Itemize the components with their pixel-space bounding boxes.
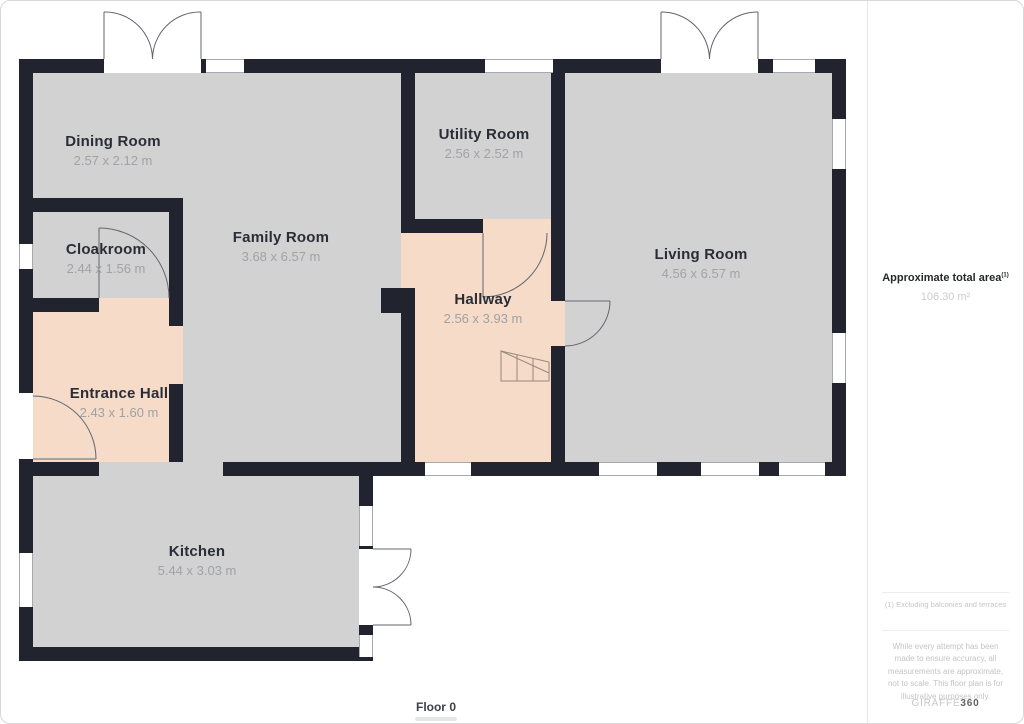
disclaimer-text: While every attempt has been made to ens… [884, 641, 1007, 703]
window-left-cloakroom [19, 244, 33, 269]
wall-entrance-bottom-b [223, 462, 359, 476]
sidebar: Approximate total area(1) 106.30 m² (1) … [868, 1, 1023, 723]
window-bottom-hallway [425, 462, 471, 476]
wall-entrance-right-a [169, 312, 183, 326]
hallway-living-doorway [551, 301, 565, 346]
wall-hallway-stub [381, 288, 415, 313]
window-right-1 [832, 119, 846, 169]
floor-tab-underline [415, 717, 457, 721]
brand-suffix: 360 [960, 698, 979, 709]
wall-hallway-living [551, 346, 565, 476]
living-door-right-arc [710, 12, 759, 59]
door-gap-living-top [661, 59, 758, 73]
brand-name: GIRAFFE [911, 698, 960, 709]
entrance-hall-floor [33, 312, 169, 462]
wall-utility-living [551, 59, 565, 301]
hallway-utility-doorway [483, 219, 551, 233]
window-right-2 [832, 333, 846, 383]
wall-entrance-right-b [169, 384, 183, 462]
wall-cloakroom-bottom [33, 298, 99, 312]
window-bottom-living-3 [779, 462, 825, 476]
giraffe360-logo: GIRAFFE360 [868, 698, 1023, 709]
wall-utility-bottom [401, 219, 483, 233]
window-kitchen-right [359, 506, 373, 546]
floorplan-page: Dining Room2.57 x 2.12 m Utility Room2.5… [0, 0, 1024, 724]
area-footnote: (1) Excluding balconies and terraces [868, 600, 1023, 609]
wall-entrance-bottom-a [19, 462, 99, 476]
door-gap-dining [104, 59, 201, 73]
door-gap-front [19, 393, 33, 459]
window-top-utility [485, 59, 553, 73]
wall-bottom-kitchen [19, 647, 373, 661]
sidebar-divider-top [882, 592, 1009, 593]
window-bottom-living-1 [599, 462, 657, 476]
window-left-kitchen [19, 553, 33, 607]
door-gap-kitchen-rear [359, 549, 373, 625]
total-area-label: Approximate total area(1) [868, 272, 1023, 284]
wall-family-hallway [401, 313, 415, 462]
kitchen-door-top-arc [373, 549, 411, 587]
hallway-floor [415, 233, 551, 462]
dining-door-right-arc [153, 12, 202, 59]
hallway-family-opening [401, 233, 415, 288]
floor-label: Floor 0 [416, 700, 456, 714]
kitchen-floor-area [33, 476, 359, 647]
wall-family-utility [401, 59, 415, 233]
total-area-value: 106.30 m² [868, 291, 1023, 303]
window-bottom-living-2 [701, 462, 759, 476]
total-area-footnote-marker: (1) [1001, 272, 1008, 278]
kitchen-doorway-floor [99, 462, 223, 476]
window-kitchen-right-2 [359, 635, 373, 657]
wall-dining-cloakroom [33, 198, 183, 212]
kitchen-door-bottom-arc [373, 587, 411, 625]
cloakroom-doorway [99, 298, 169, 312]
sidebar-divider-bottom [882, 630, 1009, 631]
wall-cloakroom-right [169, 198, 183, 312]
window-top-1 [206, 59, 244, 73]
floor-selector-tab[interactable]: Floor 0 [396, 700, 476, 721]
window-top-living [773, 59, 815, 73]
entrance-family-opening [169, 326, 183, 384]
living-door-left-arc [661, 12, 710, 59]
dining-door-left-arc [104, 12, 153, 59]
